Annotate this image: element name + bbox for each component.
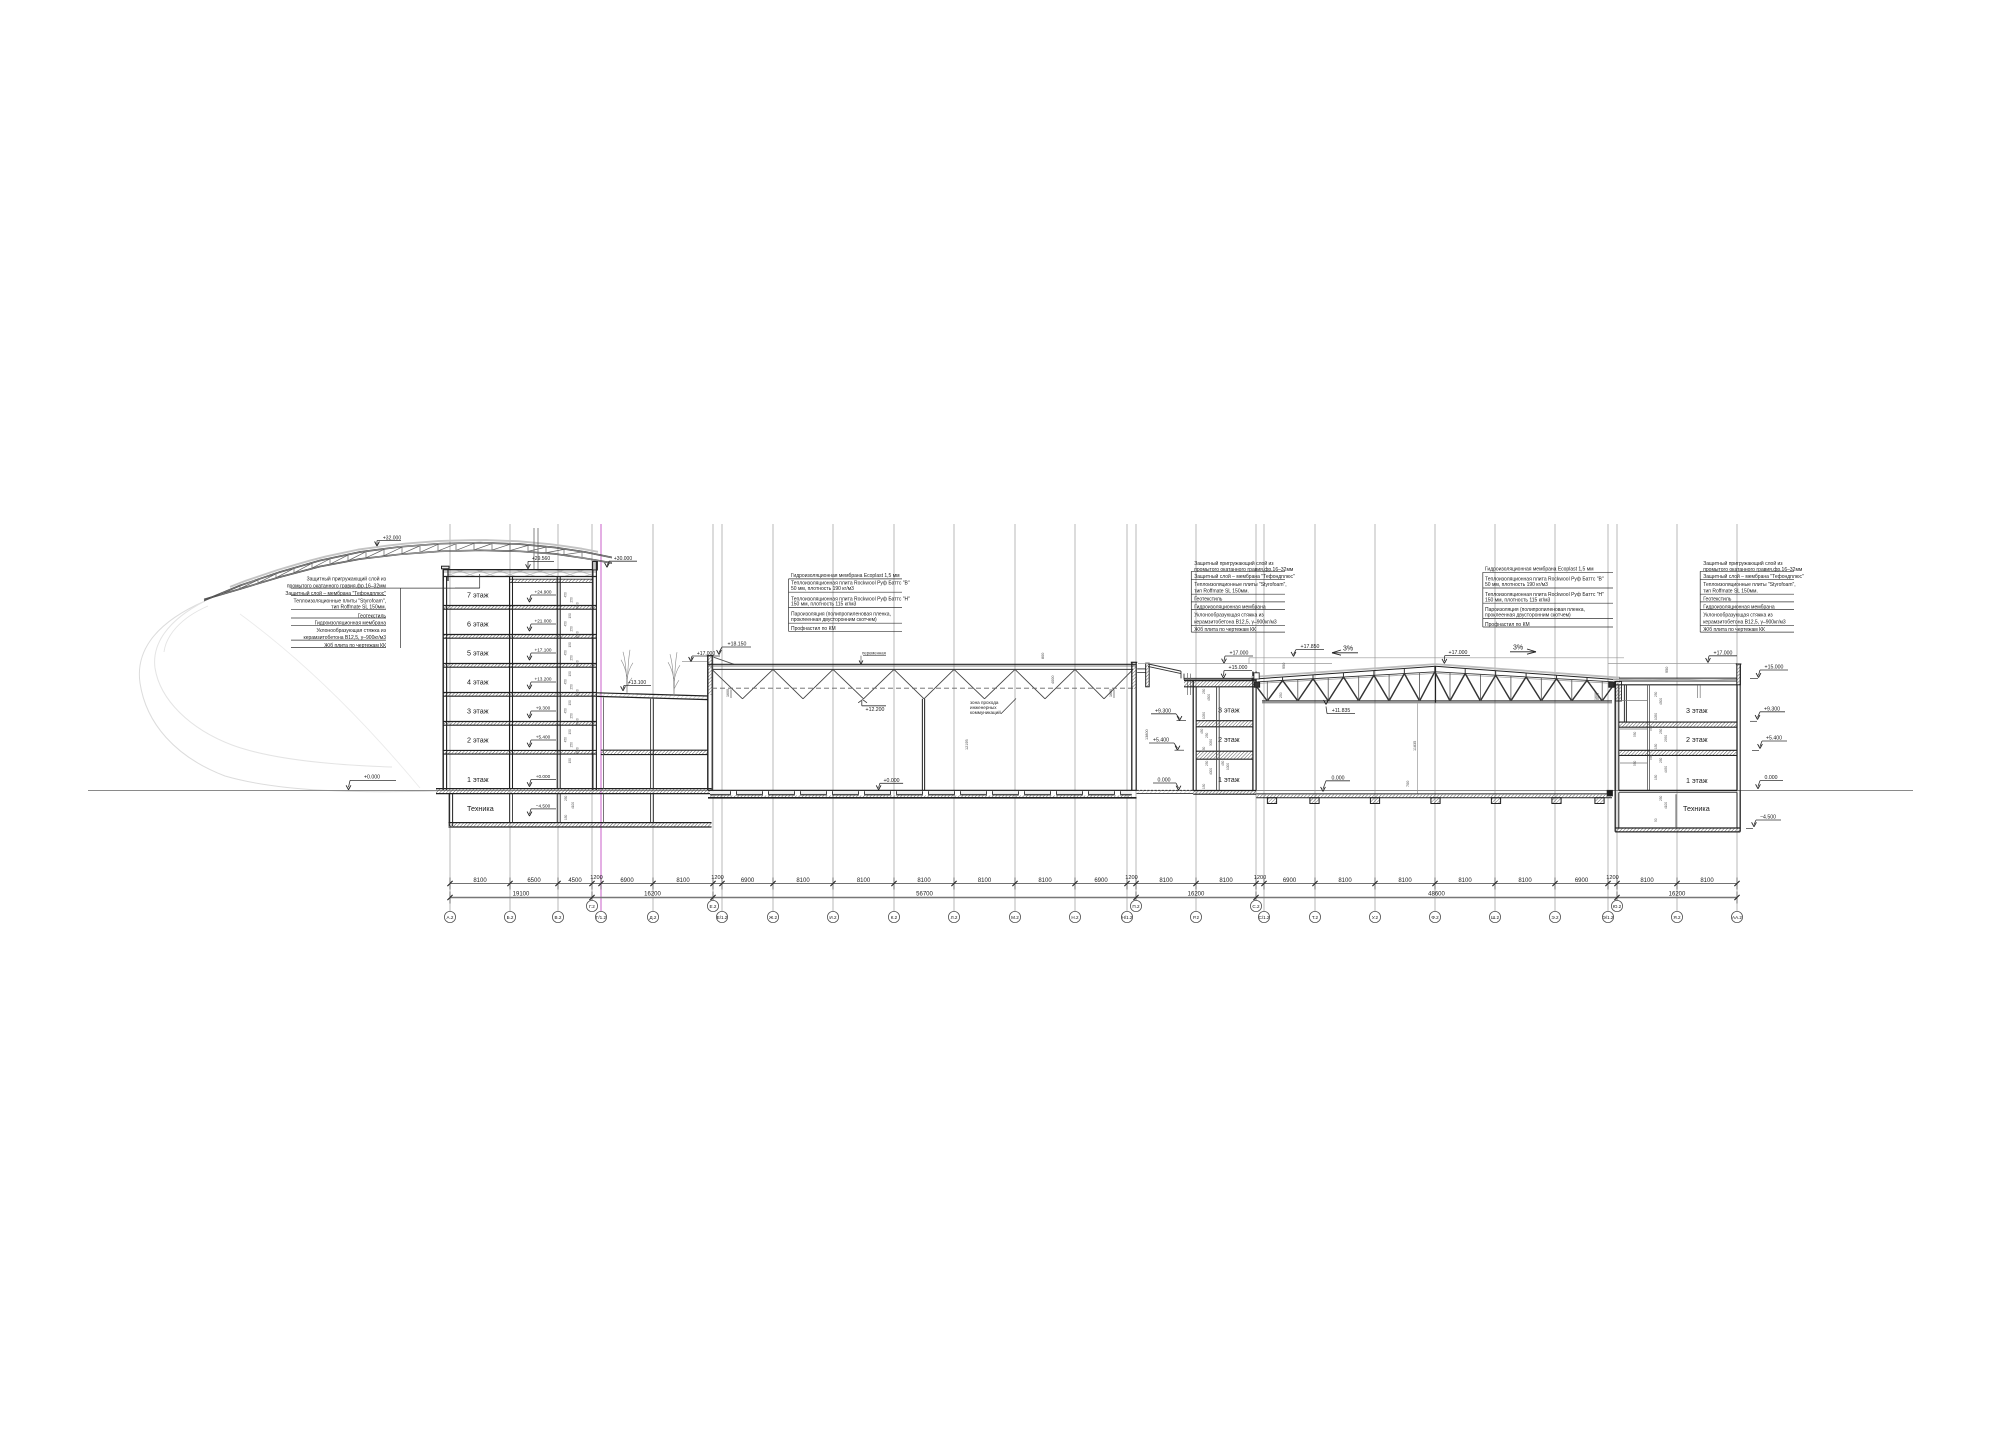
svg-text:Техника: Техника xyxy=(467,804,494,813)
svg-text:промытого окатанного гравия,фр: промытого окатанного гравия,фр.16–32мм xyxy=(1194,567,1294,573)
svg-text:Гидроизоляционная мембрана: Гидроизоляционная мембрана xyxy=(315,621,387,627)
svg-text:коммуникаций: коммуникаций xyxy=(970,709,1001,715)
svg-text:12195: 12195 xyxy=(965,739,969,750)
svg-text:+5.400: +5.400 xyxy=(536,735,551,740)
svg-text:450: 450 xyxy=(564,708,568,714)
svg-text:1200: 1200 xyxy=(590,875,602,881)
svg-text:Техника: Техника xyxy=(1683,804,1710,813)
svg-text:1000: 1000 xyxy=(1226,763,1230,770)
svg-text:250: 250 xyxy=(1205,760,1209,766)
svg-text:11835: 11835 xyxy=(1413,741,1417,751)
svg-text:3%: 3% xyxy=(1513,645,1523,652)
svg-text:3050: 3050 xyxy=(576,602,580,609)
svg-text:Г.2: Г.2 xyxy=(589,904,595,909)
svg-text:5 этаж: 5 этаж xyxy=(467,648,489,657)
svg-text:С/1.2: С/1.2 xyxy=(1259,915,1270,920)
svg-text:8100: 8100 xyxy=(1518,878,1532,884)
svg-text:П.2: П.2 xyxy=(1132,904,1140,909)
svg-text:16200: 16200 xyxy=(644,892,661,898)
svg-text:450: 450 xyxy=(564,737,568,743)
svg-text:Г/1.2: Г/1.2 xyxy=(596,915,607,920)
svg-text:56700: 56700 xyxy=(916,892,933,898)
svg-text:Геотекстиль: Геотекстиль xyxy=(358,613,387,619)
svg-text:3050: 3050 xyxy=(576,689,580,696)
svg-text:Ж.2: Ж.2 xyxy=(769,915,778,920)
svg-text:8100: 8100 xyxy=(796,878,810,884)
svg-text:8100: 8100 xyxy=(1159,878,1173,884)
svg-text:19100: 19100 xyxy=(513,892,530,898)
svg-text:Защитный пригружающий слой из: Защитный пригружающий слой из xyxy=(307,575,387,582)
svg-text:50 мм, плотность 190 кг/м3: 50 мм, плотность 190 кг/м3 xyxy=(1485,582,1548,588)
svg-text:6900: 6900 xyxy=(1094,878,1108,884)
svg-text:8100: 8100 xyxy=(1640,878,1654,884)
svg-text:450: 450 xyxy=(564,679,568,685)
svg-text:1 этаж: 1 этаж xyxy=(1686,776,1708,785)
svg-text:3050: 3050 xyxy=(576,631,580,638)
svg-text:Ф.2: Ф.2 xyxy=(1431,915,1439,920)
svg-text:+0.000: +0.000 xyxy=(364,775,380,781)
svg-text:8100: 8100 xyxy=(1398,878,1412,884)
svg-text:Б.2: Б.2 xyxy=(507,915,514,920)
svg-text:3050: 3050 xyxy=(576,747,580,754)
svg-text:У.2: У.2 xyxy=(1372,915,1379,920)
svg-text:550: 550 xyxy=(1649,725,1653,731)
svg-text:450: 450 xyxy=(1200,728,1204,734)
svg-text:Я.2: Я.2 xyxy=(1673,915,1681,920)
svg-text:И.2: И.2 xyxy=(829,915,837,920)
svg-text:250: 250 xyxy=(1659,795,1663,801)
svg-text:проклеенная двусторонним скотч: проклеенная двусторонним скотчем) xyxy=(1485,612,1571,618)
svg-text:2 этаж: 2 этаж xyxy=(1686,735,1708,744)
svg-text:2 этаж: 2 этаж xyxy=(1218,735,1240,744)
svg-text:переменная: переменная xyxy=(862,651,886,656)
svg-text:Ж/б плита по чертежам КК: Ж/б плита по чертежам КК xyxy=(324,643,386,649)
svg-text:250: 250 xyxy=(564,795,568,801)
svg-text:−4.500: −4.500 xyxy=(536,804,551,809)
svg-text:13800: 13800 xyxy=(1145,729,1149,740)
svg-text:50 мм, плотность 190 кг/м3: 50 мм, плотность 190 кг/м3 xyxy=(791,586,854,592)
svg-text:8100: 8100 xyxy=(1038,878,1052,884)
svg-text:В.2: В.2 xyxy=(555,915,562,920)
svg-text:1200: 1200 xyxy=(1606,875,1618,881)
svg-text:150 мм, плотность 115 кг/м3: 150 мм, плотность 115 кг/м3 xyxy=(791,602,857,608)
svg-text:+0.000: +0.000 xyxy=(536,774,551,779)
svg-text:250: 250 xyxy=(570,597,574,603)
svg-text:250: 250 xyxy=(1659,728,1663,734)
svg-text:Ю.2: Ю.2 xyxy=(1613,904,1622,909)
svg-text:Уклонообразующая стяжка из: Уклонообразующая стяжка из xyxy=(1194,612,1264,618)
svg-text:Р.2: Р.2 xyxy=(1193,915,1199,920)
svg-text:250: 250 xyxy=(570,626,574,632)
svg-text:150: 150 xyxy=(1202,746,1206,752)
svg-text:250: 250 xyxy=(1654,691,1658,697)
svg-text:700: 700 xyxy=(1406,781,1410,787)
svg-text:Д.2: Д.2 xyxy=(650,915,657,920)
svg-text:Э.2: Э.2 xyxy=(1551,915,1559,920)
svg-text:150: 150 xyxy=(568,613,572,619)
svg-text:Н/1.2: Н/1.2 xyxy=(1122,915,1133,920)
svg-text:50: 50 xyxy=(1654,818,1658,822)
svg-text:4500: 4500 xyxy=(1659,698,1663,705)
svg-text:8100: 8100 xyxy=(676,878,690,884)
svg-text:3 этаж: 3 этаж xyxy=(467,706,489,715)
svg-text:8100: 8100 xyxy=(917,878,931,884)
svg-text:Уклонообразующая стяжка из: Уклонообразующая стяжка из xyxy=(1703,612,1773,618)
svg-text:АА.2: АА.2 xyxy=(1732,915,1742,920)
svg-text:Ш.2: Ш.2 xyxy=(1491,915,1499,920)
svg-text:Т.2: Т.2 xyxy=(1312,915,1319,920)
svg-text:1600: 1600 xyxy=(1109,689,1113,697)
svg-text:550: 550 xyxy=(1633,731,1637,737)
svg-text:+9.300: +9.300 xyxy=(536,706,551,711)
svg-text:керамзитобетона В12,5, γ–900кг: керамзитобетона В12,5, γ–900кг/м3 xyxy=(1194,620,1277,626)
svg-text:4450: 4450 xyxy=(1664,766,1668,773)
svg-text:7 этаж: 7 этаж xyxy=(467,590,489,599)
svg-text:150: 150 xyxy=(1202,783,1206,789)
svg-text:Теплоизоляционные плиты "Styro: Теплоизоляционные плиты "Styrofoam", xyxy=(1194,582,1286,588)
svg-text:6900: 6900 xyxy=(1283,878,1297,884)
svg-text:1050: 1050 xyxy=(1654,713,1658,720)
svg-text:1200: 1200 xyxy=(1125,875,1137,881)
svg-text:промытого окатанного гравия,фр: промытого окатанного гравия,фр.16–32мм xyxy=(1703,567,1803,573)
svg-text:150: 150 xyxy=(568,729,572,735)
svg-text:Л.2: Л.2 xyxy=(951,915,958,920)
svg-text:керамзитобетона В12,5, γ–900кг: керамзитобетона В12,5, γ–900кг/м3 xyxy=(1703,620,1786,626)
svg-text:4100: 4100 xyxy=(571,802,575,809)
svg-text:4500: 4500 xyxy=(568,878,582,884)
svg-text:16200: 16200 xyxy=(1669,892,1686,898)
svg-text:150: 150 xyxy=(568,671,572,677)
svg-text:450: 450 xyxy=(564,650,568,656)
svg-text:550: 550 xyxy=(1649,754,1653,760)
svg-text:800: 800 xyxy=(1041,653,1045,659)
svg-text:250: 250 xyxy=(570,713,574,719)
svg-text:8100: 8100 xyxy=(1700,878,1714,884)
svg-text:950: 950 xyxy=(1282,663,1286,669)
svg-text:3%: 3% xyxy=(1343,646,1353,653)
svg-text:Теплоизоляционные плиты "Styro: Теплоизоляционные плиты "Styrofoam", xyxy=(294,598,386,604)
svg-text:С.2: С.2 xyxy=(1252,904,1260,909)
svg-text:250: 250 xyxy=(1205,732,1209,738)
svg-text:450: 450 xyxy=(564,621,568,627)
svg-text:4 этаж: 4 этаж xyxy=(467,677,489,686)
svg-text:1200: 1200 xyxy=(1254,875,1266,881)
svg-text:тип Roffmate SL 150мм.: тип Roffmate SL 150мм. xyxy=(1703,589,1758,595)
svg-text:4000: 4000 xyxy=(1209,768,1213,775)
svg-text:Гидроизоляционная мембрана Eco: Гидроизоляционная мембрана Ecoplast 1,5 … xyxy=(1485,566,1594,572)
svg-text:1 этаж: 1 этаж xyxy=(467,775,489,784)
svg-text:6 этаж: 6 этаж xyxy=(467,619,489,628)
svg-text:+17.000: +17.000 xyxy=(1449,650,1468,656)
svg-text:М.2: М.2 xyxy=(1011,915,1019,920)
svg-text:2 этаж: 2 этаж xyxy=(467,735,489,744)
svg-text:2950: 2950 xyxy=(1664,735,1668,742)
svg-text:Е.2: Е.2 xyxy=(710,904,717,909)
svg-text:250: 250 xyxy=(1202,688,1206,694)
svg-text:А.2: А.2 xyxy=(447,915,454,920)
svg-text:48600: 48600 xyxy=(1428,892,1445,898)
svg-text:+24.900: +24.900 xyxy=(534,590,551,595)
svg-text:250: 250 xyxy=(1659,757,1663,763)
svg-text:4100: 4100 xyxy=(1664,802,1668,809)
svg-text:8100: 8100 xyxy=(1458,878,1472,884)
svg-text:8100: 8100 xyxy=(1219,878,1233,884)
svg-text:+12.200: +12.200 xyxy=(866,707,885,713)
svg-text:8100: 8100 xyxy=(1338,878,1352,884)
svg-text:150: 150 xyxy=(1654,743,1658,749)
svg-text:1200: 1200 xyxy=(711,875,723,881)
svg-text:250: 250 xyxy=(570,742,574,748)
svg-text:4000: 4000 xyxy=(1051,676,1055,684)
svg-text:8100: 8100 xyxy=(473,878,487,884)
svg-text:Н.2: Н.2 xyxy=(1071,915,1079,920)
svg-text:Е/1.2: Е/1.2 xyxy=(717,915,728,920)
svg-text:16200: 16200 xyxy=(1188,892,1205,898)
svg-text:проклеенная двусторонним скотч: проклеенная двусторонним скотчем) xyxy=(791,617,877,623)
svg-text:3 этаж: 3 этаж xyxy=(1218,706,1240,715)
svg-text:3 этаж: 3 этаж xyxy=(1686,706,1708,715)
svg-text:150: 150 xyxy=(568,642,572,648)
svg-text:8100: 8100 xyxy=(978,878,992,884)
svg-text:8100: 8100 xyxy=(857,878,871,884)
svg-text:250: 250 xyxy=(570,655,574,661)
svg-text:150: 150 xyxy=(568,758,572,764)
svg-text:+21.000: +21.000 xyxy=(534,619,551,624)
svg-text:6500: 6500 xyxy=(527,878,541,884)
svg-text:К.2: К.2 xyxy=(891,915,898,920)
svg-text:150 мм, плотность 115 кг/м3: 150 мм, плотность 115 кг/м3 xyxy=(1485,598,1551,604)
svg-text:150: 150 xyxy=(568,700,572,706)
svg-text:3050: 3050 xyxy=(576,718,580,725)
svg-text:Гидроизоляционная мембрана Eco: Гидроизоляционная мембрана Ecoplast 1,5 … xyxy=(791,573,900,579)
svg-text:тип Roffmate SL 150мм.: тип Roffmate SL 150мм. xyxy=(1194,589,1249,595)
svg-text:150: 150 xyxy=(564,814,568,820)
svg-text:1050: 1050 xyxy=(1202,712,1206,719)
svg-text:3050: 3050 xyxy=(1209,739,1213,746)
svg-text:6900: 6900 xyxy=(741,878,755,884)
svg-text:550: 550 xyxy=(1633,760,1637,766)
svg-text:450: 450 xyxy=(564,592,568,598)
svg-text:250: 250 xyxy=(1279,692,1283,698)
svg-text:Э/1.2: Э/1.2 xyxy=(1603,915,1614,920)
svg-text:250: 250 xyxy=(570,684,574,690)
svg-text:Теплоизоляционные плиты "Styro: Теплоизоляционные плиты "Styrofoam", xyxy=(1703,582,1795,588)
svg-text:1 этаж: 1 этаж xyxy=(1218,775,1240,784)
svg-text:3050: 3050 xyxy=(576,660,580,667)
svg-text:950: 950 xyxy=(1665,667,1669,673)
svg-text:6900: 6900 xyxy=(620,878,634,884)
svg-text:1600: 1600 xyxy=(726,689,730,697)
svg-text:6900: 6900 xyxy=(1575,878,1589,884)
svg-text:Уклонообразующая стяжка из: Уклонообразующая стяжка из xyxy=(316,628,386,634)
svg-text:4500: 4500 xyxy=(1207,694,1211,701)
svg-text:150: 150 xyxy=(1654,774,1658,780)
svg-text:1600: 1600 xyxy=(1594,692,1598,700)
svg-text:+13.200: +13.200 xyxy=(534,677,551,682)
svg-text:+17.100: +17.100 xyxy=(534,648,551,653)
svg-text:450: 450 xyxy=(1221,760,1225,766)
